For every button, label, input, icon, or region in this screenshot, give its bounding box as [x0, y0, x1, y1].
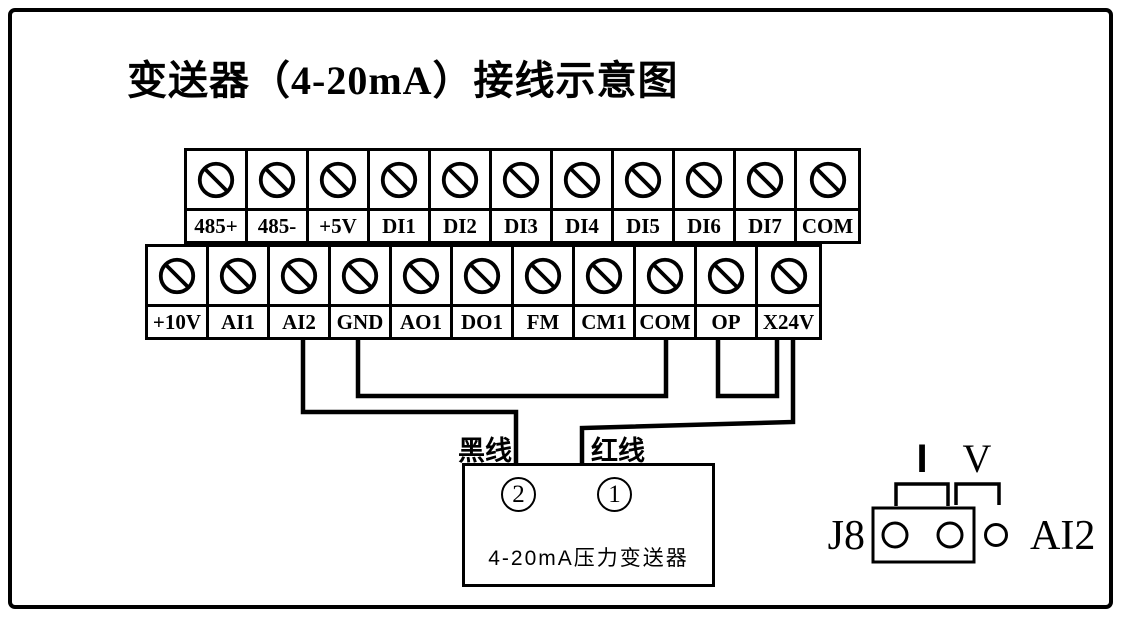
screw-terminal-icon [270, 247, 328, 307]
terminal-label: DI6 [675, 211, 733, 241]
screw-terminal-icon [331, 247, 389, 307]
terminal-label: GND [331, 307, 389, 337]
terminal-cell-ao1: AO1 [392, 247, 453, 337]
transmitter-terminal-2: 2 [501, 477, 536, 512]
terminal-label: 485- [248, 211, 306, 241]
jumper-pin-2 [938, 523, 962, 547]
screw-terminal-icon [575, 247, 633, 307]
screw-terminal-icon [675, 151, 733, 211]
current-mode-bracket [896, 484, 948, 506]
terminal-cell-485plus: 485+ [187, 151, 248, 241]
jumper-pin-3 [986, 525, 1007, 546]
screw-terminal-icon [797, 151, 858, 211]
screw-terminal-icon [553, 151, 611, 211]
terminal-label: DI7 [736, 211, 794, 241]
screw-terminal-icon [148, 247, 206, 307]
transmitter-terminal-1: 1 [597, 477, 632, 512]
terminal-cell-x24v: X24V [758, 247, 819, 337]
j8-jumper-block: I V J8 AI2 [820, 410, 1120, 580]
terminal-cell-di5: DI5 [614, 151, 675, 241]
terminal-cell-10v: +10V [148, 247, 209, 337]
terminal-cell-di6: DI6 [675, 151, 736, 241]
terminal-label: DO1 [453, 307, 511, 337]
terminal-cell-do1: DO1 [453, 247, 514, 337]
screw-terminal-icon [309, 151, 367, 211]
screw-terminal-icon [636, 247, 694, 307]
screw-terminal-icon [392, 247, 450, 307]
transmitter-name-label: 4-20mA压力变送器 [465, 542, 712, 572]
screw-terminal-icon [736, 151, 794, 211]
screw-terminal-icon [614, 151, 672, 211]
j8-label: J8 [828, 513, 865, 559]
terminal-label: COM [797, 211, 858, 241]
pressure-transmitter-box: 2 1 4-20mA压力变送器 [462, 463, 715, 587]
terminal-cell-di3: DI3 [492, 151, 553, 241]
jumper-channel-label: AI2 [1030, 513, 1095, 559]
terminal-cell-fm: FM [514, 247, 575, 337]
terminal-cell-com-bottom: COM [636, 247, 697, 337]
screw-terminal-icon [758, 247, 819, 307]
terminal-label: +10V [148, 307, 206, 337]
terminal-cell-di4: DI4 [553, 151, 614, 241]
terminal-cell-ai2: AI2 [270, 247, 331, 337]
terminal-cell-di7: DI7 [736, 151, 797, 241]
terminal-label: CM1 [575, 307, 633, 337]
terminal-label: DI5 [614, 211, 672, 241]
jumper-pin-1 [883, 523, 907, 547]
voltage-mode-label: V [963, 436, 992, 481]
terminal-label: DI3 [492, 211, 550, 241]
diagram-title: 变送器（4-20mA）接线示意图 [127, 48, 679, 106]
screw-terminal-icon [453, 247, 511, 307]
screw-terminal-icon [248, 151, 306, 211]
screw-terminal-icon [697, 247, 755, 307]
terminal-cell-485minus: 485- [248, 151, 309, 241]
terminal-label: DI1 [370, 211, 428, 241]
terminal-label: OP [697, 307, 755, 337]
terminal-label: +5V [309, 211, 367, 241]
screw-terminal-icon [431, 151, 489, 211]
terminal-row-bottom: +10V AI1 AI2 GND AO1 DO1 FM CM1 COM OP X… [145, 244, 822, 340]
screw-terminal-icon [514, 247, 572, 307]
terminal-cell-5v: +5V [309, 151, 370, 241]
terminal-cell-com-top: COM [797, 151, 858, 241]
terminal-label: AO1 [392, 307, 450, 337]
current-mode-label: I [916, 437, 927, 481]
screw-terminal-icon [209, 247, 267, 307]
screw-terminal-icon [370, 151, 428, 211]
terminal-row-top: 485+ 485- +5V DI1 DI2 DI3 DI4 DI5 DI6 DI… [184, 148, 861, 244]
terminal-label: AI2 [270, 307, 328, 337]
terminal-cell-di1: DI1 [370, 151, 431, 241]
voltage-mode-bracket [956, 484, 999, 505]
terminal-cell-cm1: CM1 [575, 247, 636, 337]
terminal-cell-di2: DI2 [431, 151, 492, 241]
jumper-cap [873, 508, 974, 562]
screw-terminal-icon [492, 151, 550, 211]
terminal-label: DI2 [431, 211, 489, 241]
terminal-label: AI1 [209, 307, 267, 337]
terminal-cell-gnd: GND [331, 247, 392, 337]
terminal-label: FM [514, 307, 572, 337]
terminal-cell-ai1: AI1 [209, 247, 270, 337]
terminal-label: DI4 [553, 211, 611, 241]
terminal-label: COM [636, 307, 694, 337]
terminal-cell-op: OP [697, 247, 758, 337]
terminal-label: 485+ [187, 211, 245, 241]
terminal-label: X24V [758, 307, 819, 337]
screw-terminal-icon [187, 151, 245, 211]
